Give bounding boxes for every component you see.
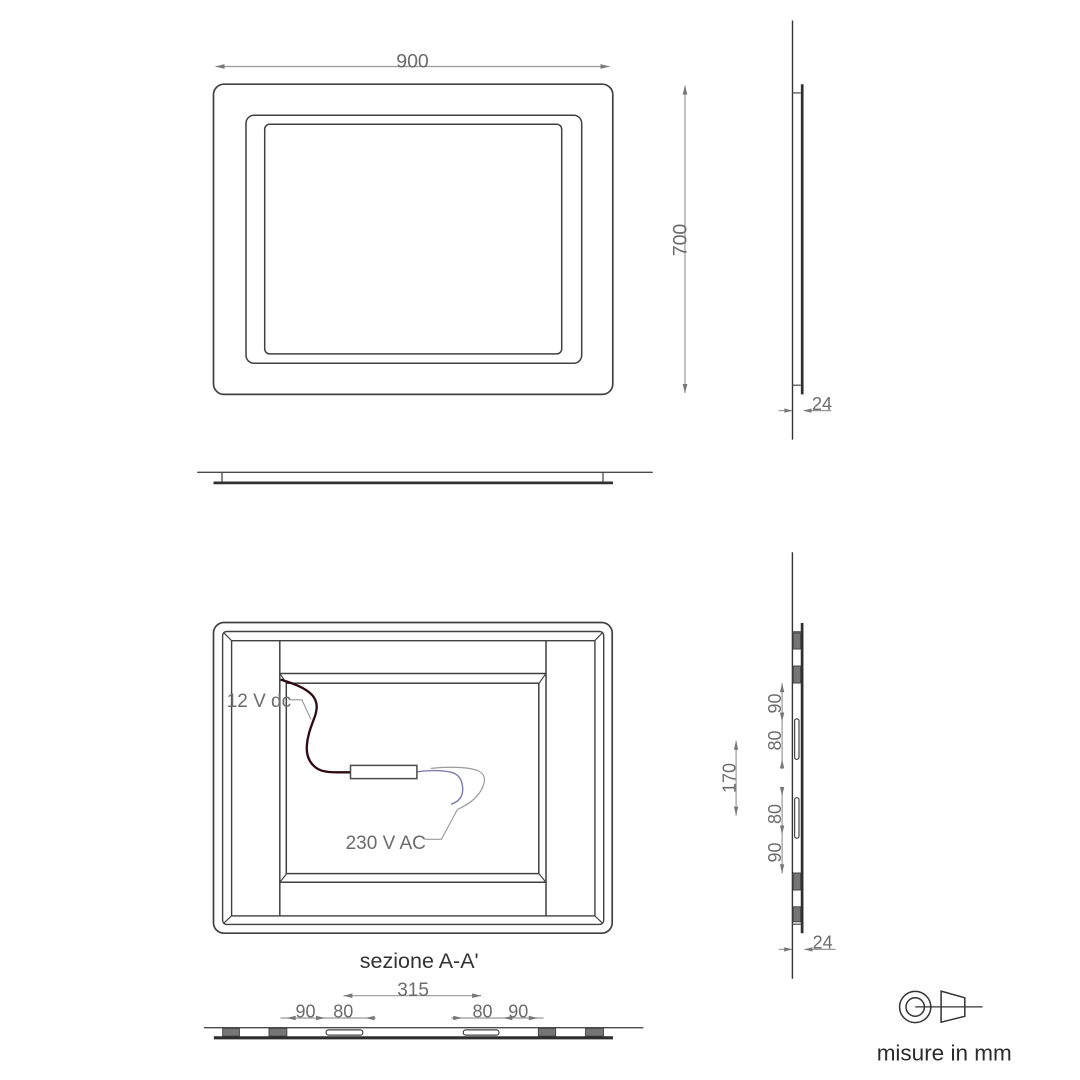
svg-text:90: 90: [765, 842, 785, 862]
svg-text:90: 90: [508, 1001, 528, 1021]
svg-text:90: 90: [295, 1001, 315, 1021]
svg-text:24: 24: [813, 933, 833, 953]
svg-text:12 V dc: 12 V dc: [227, 691, 291, 712]
svg-text:315: 315: [397, 980, 429, 1001]
svg-text:90: 90: [765, 693, 785, 713]
svg-text:80: 80: [333, 1001, 353, 1021]
svg-text:80: 80: [765, 804, 785, 824]
svg-text:700: 700: [670, 224, 692, 257]
svg-text:24: 24: [812, 394, 832, 414]
svg-text:sezione A-A': sezione A-A': [360, 949, 479, 973]
svg-text:900: 900: [396, 50, 429, 72]
svg-text:80: 80: [765, 730, 785, 750]
svg-text:230 V AC: 230 V AC: [346, 833, 426, 854]
svg-text:80: 80: [472, 1001, 492, 1021]
svg-text:misure in mm: misure in mm: [877, 1041, 1012, 1066]
svg-text:170: 170: [719, 763, 739, 793]
